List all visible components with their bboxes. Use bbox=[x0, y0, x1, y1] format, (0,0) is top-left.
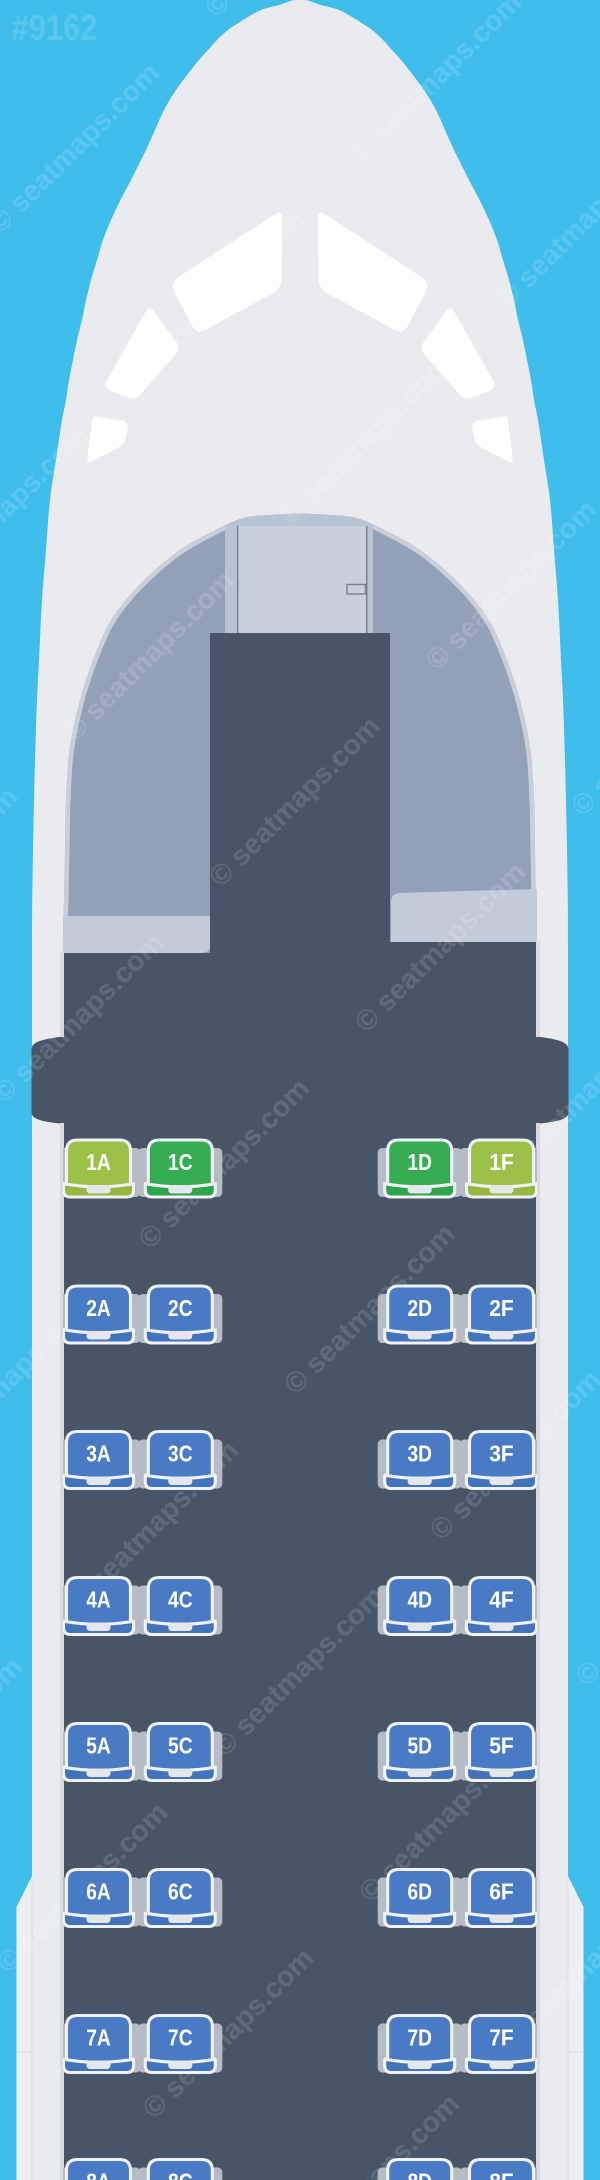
svg-text:6F: 6F bbox=[489, 1879, 514, 1905]
svg-text:6C: 6C bbox=[168, 1879, 193, 1905]
svg-text:4D: 4D bbox=[407, 1587, 432, 1613]
svg-text:7C: 7C bbox=[168, 2025, 193, 2051]
svg-text:2A: 2A bbox=[86, 1295, 111, 1321]
svg-text:6A: 6A bbox=[86, 1879, 111, 1905]
svg-text:3A: 3A bbox=[86, 1441, 111, 1467]
svg-text:7F: 7F bbox=[489, 2025, 514, 2051]
svg-text:1D: 1D bbox=[407, 1149, 432, 1175]
svg-text:5D: 5D bbox=[407, 1733, 432, 1759]
svg-text:4F: 4F bbox=[489, 1587, 514, 1613]
svg-text:5A: 5A bbox=[86, 1733, 111, 1759]
svg-text:1A: 1A bbox=[86, 1149, 111, 1175]
svg-text:3F: 3F bbox=[489, 1441, 514, 1467]
svg-text:3D: 3D bbox=[407, 1441, 432, 1467]
svg-text:7D: 7D bbox=[407, 2025, 432, 2051]
svg-text:5C: 5C bbox=[168, 1733, 193, 1759]
svg-text:8D: 8D bbox=[407, 2169, 432, 2180]
svg-text:2D: 2D bbox=[407, 1295, 432, 1321]
svg-text:4A: 4A bbox=[86, 1587, 111, 1613]
svg-text:7A: 7A bbox=[86, 2025, 111, 2051]
svg-text:6D: 6D bbox=[407, 1879, 432, 1905]
svg-text:4C: 4C bbox=[168, 1587, 193, 1613]
svg-text:1C: 1C bbox=[168, 1149, 193, 1175]
svg-text:2C: 2C bbox=[168, 1295, 193, 1321]
svg-text:1F: 1F bbox=[489, 1149, 514, 1175]
svg-text:3C: 3C bbox=[168, 1441, 193, 1467]
svg-text:2F: 2F bbox=[489, 1295, 514, 1321]
svg-text:8F: 8F bbox=[489, 2169, 514, 2180]
svg-text:5F: 5F bbox=[489, 1733, 514, 1759]
svg-text:8C: 8C bbox=[168, 2169, 193, 2180]
svg-text:8A: 8A bbox=[86, 2169, 111, 2180]
